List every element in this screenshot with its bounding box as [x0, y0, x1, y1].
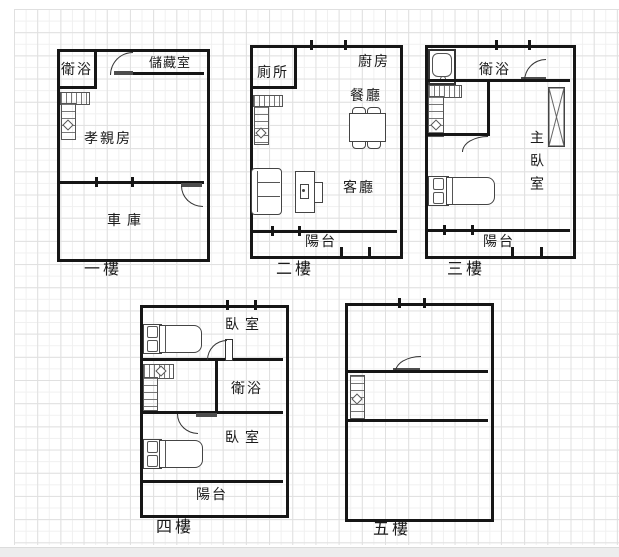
window-tick	[495, 40, 498, 50]
floor-label-5: 五樓	[373, 521, 411, 537]
wall	[425, 133, 490, 136]
wall	[425, 79, 570, 82]
wall	[57, 86, 97, 89]
wall	[345, 370, 488, 373]
window-tick	[398, 298, 401, 308]
room-label-kitchen: 廚房	[358, 55, 390, 69]
window-tick	[368, 247, 371, 257]
outer-wall	[57, 49, 210, 262]
room-label-master-bedroom: 主臥室	[529, 130, 543, 199]
room-label-balcony: 陽台	[483, 235, 515, 249]
window-tick	[271, 226, 274, 236]
window-tick	[471, 225, 474, 235]
sofa-cushion-line	[257, 196, 280, 197]
room-label-parents-room: 孝親房	[84, 132, 132, 146]
window-tick	[340, 247, 343, 257]
window-tick	[443, 225, 446, 235]
door-leaf	[196, 413, 217, 417]
wall	[215, 358, 218, 414]
dining-table-icon	[349, 113, 386, 142]
sofa-icon	[251, 168, 282, 215]
window-tick	[528, 40, 531, 50]
floor-plan-image: 衛浴 儲藏室 孝親房 車庫 一樓	[0, 0, 619, 557]
wall	[345, 419, 488, 422]
bathtub-icon	[432, 53, 452, 77]
room-label-bathroom: 衛浴	[231, 382, 263, 396]
room-label-toilet: 廁所	[257, 66, 289, 80]
window-tick	[254, 300, 257, 310]
pillow	[147, 455, 158, 467]
window-tick	[540, 247, 543, 257]
window-tick	[95, 177, 98, 187]
pillow	[433, 192, 444, 204]
pillow	[147, 340, 158, 352]
room-label-garage: 車庫	[107, 214, 147, 228]
wall	[140, 480, 283, 483]
room-label-bathroom: 衛浴	[61, 63, 93, 77]
stairs-icon	[143, 377, 158, 411]
pillow	[433, 178, 444, 190]
stairs-icon	[254, 106, 269, 145]
floor-label-2: 二樓	[276, 261, 314, 277]
room-label-balcony: 陽台	[196, 488, 228, 502]
sofa-back-line	[257, 171, 258, 212]
window-tick	[131, 177, 134, 187]
room-label-bathroom: 衛浴	[479, 63, 511, 77]
wall	[425, 229, 570, 232]
page-footer-bar	[0, 547, 619, 557]
window-tick	[344, 40, 347, 50]
wall	[250, 86, 297, 89]
sofa-cushion-line	[257, 182, 280, 183]
floor-label-4: 四樓	[156, 519, 194, 535]
window-tick	[310, 40, 313, 50]
wardrobe-icon	[548, 87, 565, 147]
stairs-icon	[428, 96, 444, 137]
outer-wall	[345, 303, 494, 522]
room-label-bedroom-upper: 臥室	[225, 318, 265, 332]
window-tick	[298, 226, 301, 236]
floor-label-1: 一樓	[84, 261, 122, 277]
pillow	[147, 326, 158, 338]
tv-icon	[302, 189, 305, 192]
floor-label-3: 三樓	[447, 261, 485, 277]
room-label-storage: 儲藏室	[149, 57, 191, 70]
bed-icon	[159, 325, 202, 353]
window-tick	[423, 298, 426, 308]
bed-icon	[159, 440, 203, 468]
room-label-living-room: 客廳	[343, 181, 375, 195]
room-label-dining-room: 餐廳	[350, 89, 382, 103]
bed-icon	[446, 177, 495, 205]
room-label-balcony: 陽台	[305, 235, 337, 249]
pillow	[147, 441, 158, 453]
wall	[294, 45, 297, 89]
wall	[94, 49, 97, 89]
room-label-bedroom-lower: 臥室	[225, 431, 265, 445]
wall	[487, 79, 490, 136]
window-tick	[226, 300, 229, 310]
